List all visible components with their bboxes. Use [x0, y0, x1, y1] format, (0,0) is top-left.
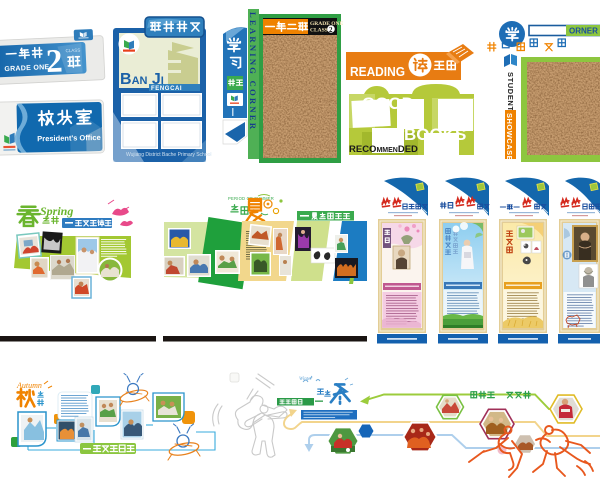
svg-text:Winter: Winter — [299, 377, 312, 382]
svg-text:2: 2 — [329, 26, 333, 34]
svg-text:STUDENT: STUDENT — [506, 72, 515, 112]
svg-text:BOOKS: BOOKS — [404, 125, 466, 144]
svg-text:Wujiang District Bache Primary: Wujiang District Bache Primary School — [126, 152, 212, 158]
svg-text:CLASS: CLASS — [65, 48, 80, 54]
svg-text:SHOWCASE: SHOWCASE — [505, 113, 514, 161]
svg-text:2: 2 — [45, 43, 63, 80]
svg-text:ORNER: ORNER — [569, 27, 598, 36]
svg-text:FENGCAI: FENGCAI — [151, 86, 182, 92]
svg-text:READING: READING — [350, 64, 405, 79]
svg-text:President's Office: President's Office — [37, 133, 101, 143]
svg-text:CLASS: CLASS — [310, 28, 328, 34]
svg-text:GOOD: GOOD — [362, 94, 414, 113]
svg-text:GRADE ONE: GRADE ONE — [310, 21, 343, 27]
svg-text:LEARNING CORNER: LEARNING CORNER — [248, 12, 258, 131]
